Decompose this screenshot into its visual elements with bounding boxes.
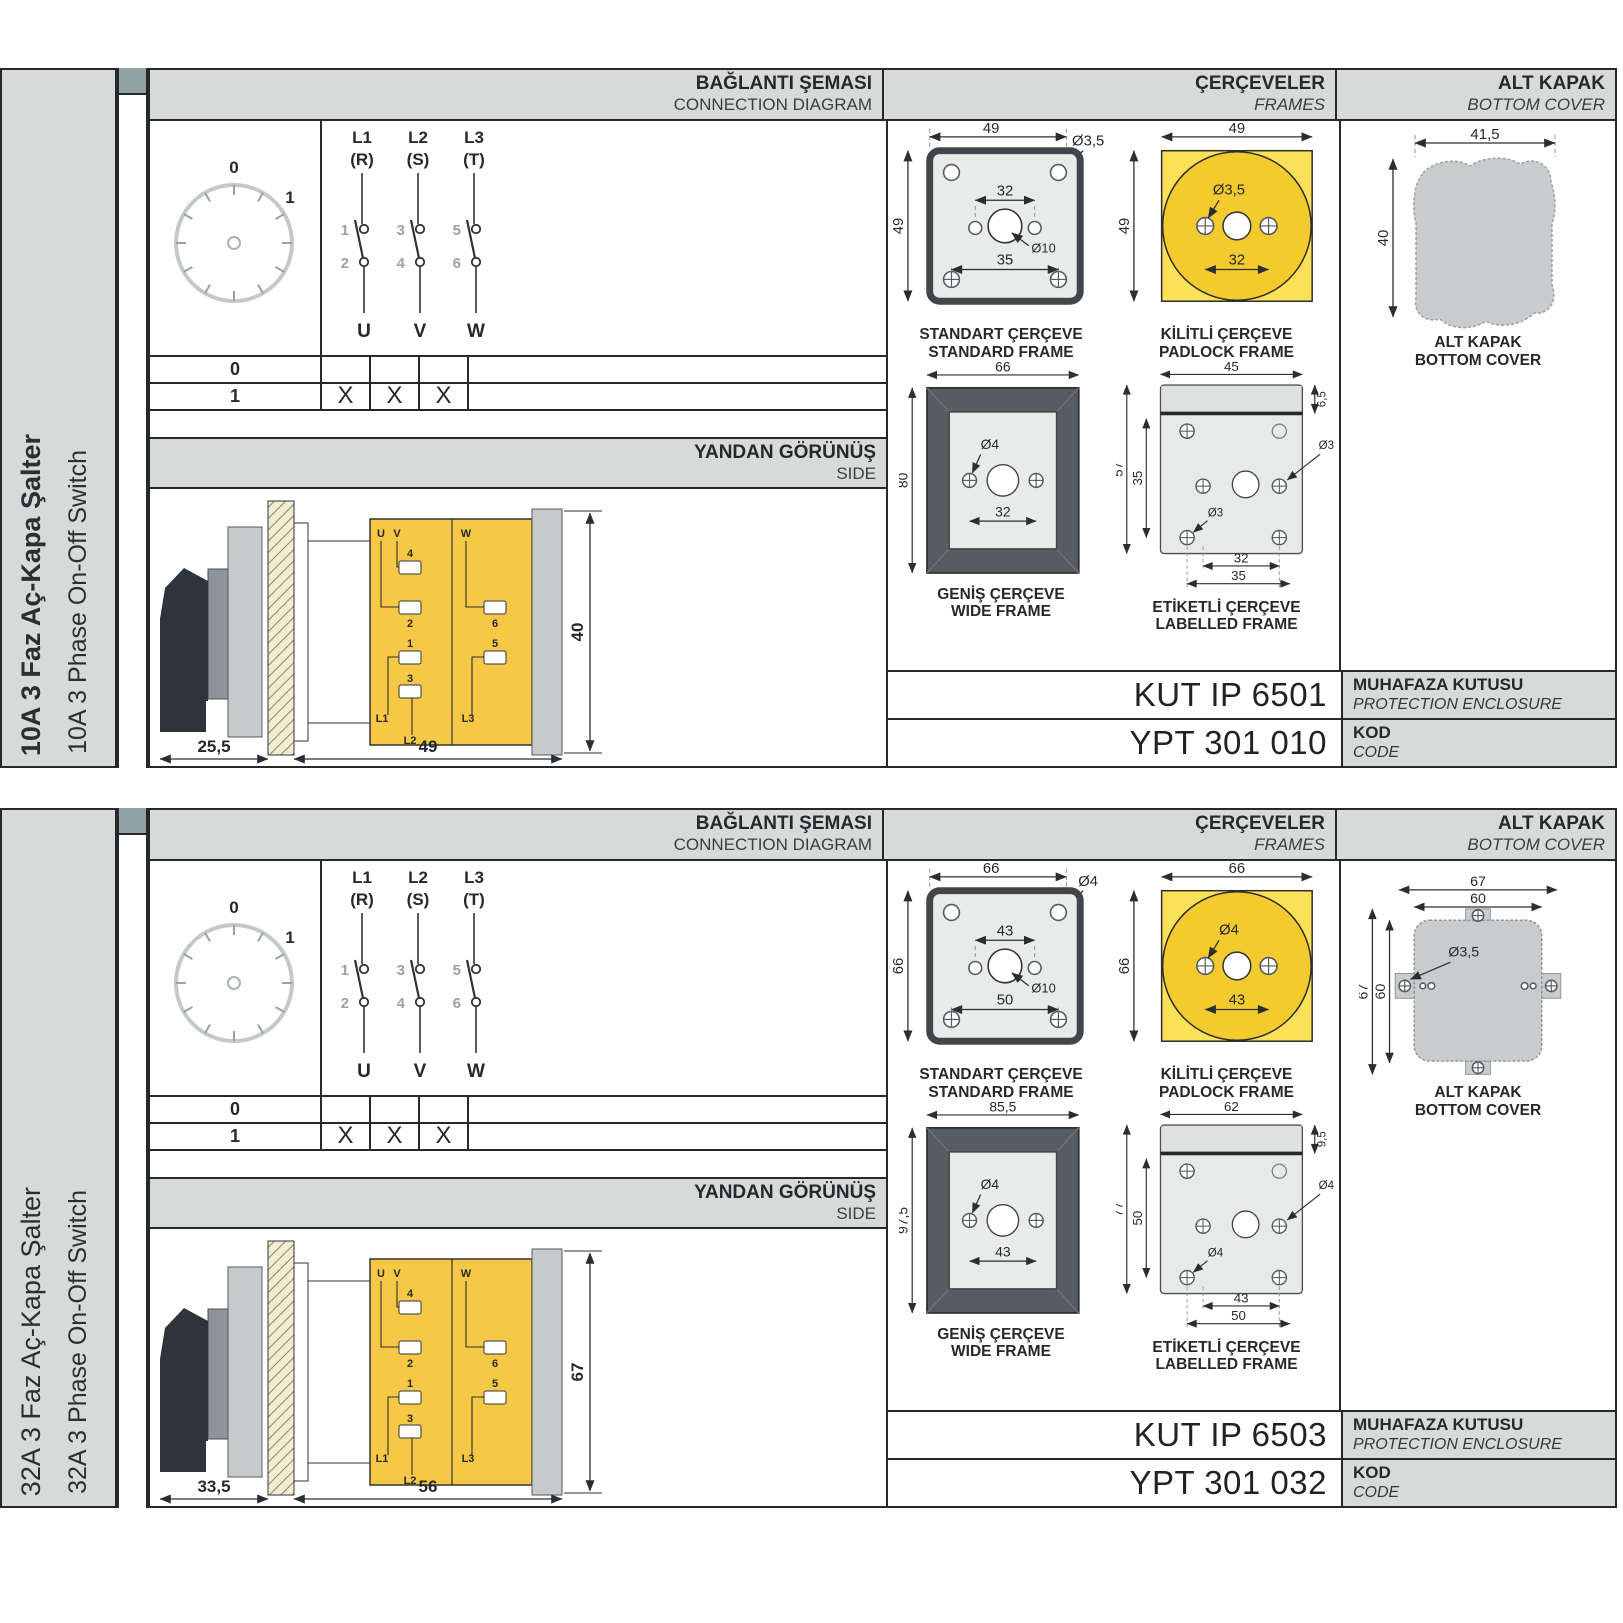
wide-frame-caption-en: WIDE FRAME	[937, 1343, 1064, 1361]
row1-w: X	[420, 1124, 469, 1149]
svg-text:43: 43	[995, 1243, 1011, 1259]
bottom-cover-caption-en: BOTTOM COVER	[1415, 1102, 1541, 1120]
bottom-cover-drawing-tabbed: 67 60 67 60	[1359, 867, 1597, 1082]
svg-text:1: 1	[341, 222, 349, 239]
svg-text:35: 35	[997, 253, 1014, 269]
switch-table-row-1: 1 X X X	[150, 384, 886, 411]
sidebar: 32A 3 Faz Aç-Kapa Şalter 32A 3 Phase On-…	[0, 808, 117, 1508]
side-view-header: YANDAN GÖRÜNÜŞ SIDE	[150, 1177, 886, 1229]
svg-text:V: V	[414, 1061, 427, 1082]
header-frames-subtitle: FRAMES	[884, 835, 1325, 855]
header-frames-title: ÇERÇEVELER	[884, 813, 1325, 835]
sidebar: 10A 3 Faz Aç-Kapa Şalter 10A 3 Phase On-…	[0, 68, 117, 768]
pole-2: L2 (S) V 3 4	[397, 868, 430, 1082]
tab-column	[117, 808, 148, 1508]
contacts-drawing: L1 (R) U 1 2 L2	[322, 861, 886, 1097]
product-section: 10A 3 Faz Aç-Kapa Şalter 10A 3 Phase On-…	[0, 68, 1623, 768]
svg-text:4: 4	[407, 1288, 414, 1300]
connection-diagram: 0 1 L1 (R) U	[150, 861, 886, 1097]
svg-text:L1: L1	[352, 868, 372, 887]
svg-text:85,5: 85,5	[989, 1102, 1016, 1114]
row0-label: 0	[150, 1097, 322, 1122]
enclosure-label-tr: MUHAFAZA KUTUSU	[1353, 1415, 1615, 1435]
switch-handle	[160, 1308, 208, 1472]
svg-text:50: 50	[1129, 1210, 1144, 1225]
sidebar-title: 32A 3 Faz Aç-Kapa Şalter	[16, 1187, 47, 1496]
svg-text:6: 6	[492, 1358, 498, 1370]
enclosure-label-tr: MUHAFAZA KUTUSU	[1353, 675, 1615, 695]
enclosure-label: MUHAFAZA KUTUSU PROTECTION ENCLOSURE	[1341, 1412, 1615, 1458]
svg-text:66: 66	[1228, 861, 1245, 877]
connection-diagram: 0 1 L1 (R) U	[150, 121, 886, 357]
standard-frame-caption-en: STANDARD FRAME	[919, 1084, 1082, 1102]
wide-frame-figure: 66 80 Ø4	[888, 362, 1114, 635]
svg-text:43: 43	[1233, 1290, 1248, 1305]
svg-text:66: 66	[892, 958, 907, 975]
dial-pos-0: 0	[229, 158, 238, 177]
bottom-cover-drawing-blob: 41,5 40	[1363, 127, 1593, 332]
svg-text:Ø4: Ø4	[981, 436, 1000, 452]
gasket	[294, 523, 308, 741]
switch-body	[370, 519, 532, 745]
section-main: BAĞLANTI ŞEMASI CONNECTION DIAGRAM ÇERÇE…	[148, 808, 1617, 1508]
svg-text:L3: L3	[464, 128, 484, 147]
front-plate	[228, 527, 262, 737]
svg-text:66: 66	[983, 861, 1000, 877]
back-plate	[532, 509, 562, 755]
svg-text:60: 60	[1470, 891, 1486, 907]
svg-text:32: 32	[1228, 253, 1245, 269]
svg-text:40: 40	[1375, 230, 1392, 247]
svg-text:Ø3: Ø3	[1318, 440, 1333, 452]
pole-3: L3 (T) W 5 6	[453, 868, 485, 1082]
svg-text:49: 49	[419, 737, 438, 756]
standard-frame-drawing: 49 Ø3,5 49 32	[892, 121, 1110, 324]
padlock-frame-drawing: 66 66 Ø4 43	[1118, 861, 1336, 1064]
row1-v: X	[371, 384, 420, 409]
svg-text:L3: L3	[464, 868, 484, 887]
bottom-cover-caption-en: BOTTOM COVER	[1415, 352, 1541, 370]
frames-column: 66 Ø4 66 43	[886, 861, 1339, 1414]
svg-text:49: 49	[1228, 121, 1245, 137]
labelled-frame-figure: 45 6,5 57 35	[1114, 362, 1339, 635]
svg-text:5: 5	[453, 962, 461, 979]
sidebar-subtitle: 10A 3 Phase On-Off Switch	[64, 450, 93, 754]
svg-text:L3: L3	[462, 1453, 475, 1465]
front-module	[308, 1281, 370, 1463]
svg-text:35: 35	[1129, 470, 1144, 485]
svg-text:U: U	[357, 321, 371, 342]
svg-text:1: 1	[407, 638, 413, 650]
back-plate	[532, 1249, 562, 1495]
row0-w	[420, 1097, 469, 1122]
padlock-frame-drawing: 49 49 Ø3,5 32	[1118, 121, 1336, 324]
wide-frame-caption-tr: GENİŞ ÇERÇEVE	[937, 586, 1064, 604]
svg-text:97,5: 97,5	[899, 1206, 911, 1233]
row0-u	[322, 1097, 371, 1122]
svg-text:35: 35	[1231, 568, 1246, 583]
header-cover-subtitle: BOTTOM COVER	[1337, 835, 1605, 855]
bottom-cover-caption-tr: ALT KAPAK	[1415, 1084, 1541, 1102]
row1-w: X	[420, 384, 469, 409]
contacts-cell: L1 (R) U 1 2 L2	[322, 121, 886, 355]
labelled-frame-figure: 62 9,5 77 50	[1114, 1102, 1339, 1375]
enclosure-label: MUHAFAZA KUTUSU PROTECTION ENCLOSURE	[1341, 672, 1615, 718]
rotary-dial-drawing: 0 1	[150, 121, 322, 357]
svg-text:4: 4	[397, 995, 406, 1012]
svg-text:77: 77	[1116, 1202, 1125, 1217]
front-module	[308, 541, 370, 723]
svg-text:2: 2	[407, 1358, 413, 1370]
row0-v	[371, 1097, 420, 1122]
standard-frame-caption-tr: STANDART ÇERÇEVE	[919, 1066, 1082, 1084]
wide-frame-figure: 85,5 97,5 Ø4	[888, 1102, 1114, 1375]
column-headers: BAĞLANTI ŞEMASI CONNECTION DIAGRAM ÇERÇE…	[150, 70, 1615, 121]
svg-text:L2: L2	[404, 1475, 417, 1487]
svg-text:(R): (R)	[350, 890, 374, 909]
side-view-drawing: U V W 4 2 1 3 6 5 L1 L2 L3	[150, 489, 886, 770]
svg-text:40: 40	[568, 623, 587, 642]
header-cover-title: ALT KAPAK	[1337, 813, 1605, 835]
svg-text:4: 4	[407, 548, 414, 560]
side-view-title: YANDAN GÖRÜNÜŞ	[150, 442, 876, 464]
svg-text:9,5: 9,5	[1316, 1131, 1328, 1147]
switch-body	[370, 1259, 532, 1485]
pole-1: L1 (R) U 1 2	[341, 868, 374, 1082]
code-label-tr: KOD	[1353, 723, 1615, 743]
svg-text:66: 66	[1118, 958, 1133, 975]
code-label: KOD CODE	[1341, 1460, 1615, 1506]
svg-text:49: 49	[983, 121, 1000, 137]
svg-text:(S): (S)	[407, 150, 430, 169]
code-rows: KUT IP 6503 MUHAFAZA KUTUSU PROTECTION E…	[886, 1410, 1615, 1506]
svg-text:41,5: 41,5	[1470, 127, 1499, 143]
bottom-cover-figure: 67 60 67 60	[1341, 861, 1615, 1120]
header-connection-subtitle: CONNECTION DIAGRAM	[150, 835, 872, 855]
side-view-title: YANDAN GÖRÜNÜŞ	[150, 1182, 876, 1204]
row0-w	[420, 357, 469, 382]
svg-text:Ø10: Ø10	[1031, 981, 1055, 996]
dial-pos-0: 0	[229, 898, 238, 917]
svg-text:L1: L1	[376, 1453, 389, 1465]
tab-square	[119, 68, 146, 95]
wide-frame-drawing: 85,5 97,5 Ø4	[899, 1102, 1103, 1324]
padlock-frame-figure: 49 49 Ø3,5 32 KİLİTLİ ÇERÇ	[1114, 121, 1339, 362]
svg-text:V: V	[414, 321, 427, 342]
code-row: YPT 301 032 KOD CODE	[888, 1458, 1615, 1506]
svg-text:4: 4	[397, 255, 406, 272]
contacts-cell: L1 (R) U 1 2 L2	[322, 861, 886, 1095]
header-cover-title: ALT KAPAK	[1337, 73, 1605, 95]
svg-text:U: U	[377, 528, 385, 540]
standard-frame-caption-tr: STANDART ÇERÇEVE	[919, 326, 1082, 344]
svg-text:L1: L1	[352, 128, 372, 147]
svg-text:Ø3,5: Ø3,5	[1072, 134, 1104, 150]
bottom-cover-column: 41,5 40	[1339, 121, 1615, 674]
svg-text:Ø3,5: Ø3,5	[1448, 944, 1479, 960]
row0-label: 0	[150, 357, 322, 382]
svg-text:49: 49	[892, 218, 907, 235]
svg-text:67: 67	[568, 1363, 587, 1382]
handle-hub	[208, 1309, 228, 1439]
dial-pos-1: 1	[285, 928, 294, 947]
connection-column: 0 1 L1 (R) U	[150, 861, 886, 1506]
svg-text:67: 67	[1359, 984, 1372, 1000]
svg-text:3: 3	[407, 673, 413, 685]
mounting-panel	[268, 501, 294, 755]
svg-text:Ø3,5: Ø3,5	[1212, 182, 1244, 198]
svg-text:V: V	[393, 1268, 401, 1280]
svg-text:33,5: 33,5	[197, 1477, 230, 1496]
svg-text:67: 67	[1470, 874, 1486, 890]
svg-text:Ø4: Ø4	[981, 1176, 1000, 1192]
header-cover: ALT KAPAK BOTTOM COVER	[1337, 70, 1615, 119]
padlock-frame-figure: 66 66 Ø4 43 KİLİTLİ ÇERÇEV	[1114, 861, 1339, 1102]
svg-text:Ø3: Ø3	[1207, 507, 1222, 519]
dial-pos-1: 1	[285, 188, 294, 207]
header-connection: BAĞLANTI ŞEMASI CONNECTION DIAGRAM	[150, 810, 884, 859]
header-frames-subtitle: FRAMES	[884, 95, 1325, 115]
svg-text:45: 45	[1224, 362, 1239, 374]
header-cover-subtitle: BOTTOM COVER	[1337, 95, 1605, 115]
labelled-frame-caption-tr: ETİKETLİ ÇERÇEVE	[1152, 1339, 1300, 1357]
svg-text:(R): (R)	[350, 150, 374, 169]
svg-text:6: 6	[453, 255, 461, 272]
svg-text:L3: L3	[462, 713, 475, 725]
svg-text:32: 32	[995, 503, 1011, 519]
product-section: 32A 3 Faz Aç-Kapa Şalter 32A 3 Phase On-…	[0, 808, 1623, 1508]
switch-table-row-0: 0	[150, 357, 886, 384]
svg-text:1: 1	[407, 1378, 413, 1390]
rotary-dial-cell: 0 1	[150, 121, 322, 355]
product-code: YPT 301 032	[888, 1460, 1341, 1506]
contacts-drawing: L1 (R) U 1 2 L2	[322, 121, 886, 357]
wide-frame-caption-tr: GENİŞ ÇERÇEVE	[937, 1326, 1064, 1344]
gasket	[294, 1263, 308, 1481]
svg-text:32: 32	[1233, 550, 1248, 565]
padlock-frame-caption-tr: KİLİTLİ ÇERÇEVE	[1159, 1066, 1294, 1084]
svg-text:5: 5	[492, 1378, 498, 1390]
svg-text:U: U	[377, 1268, 385, 1280]
section-main: BAĞLANTI ŞEMASI CONNECTION DIAGRAM ÇERÇE…	[148, 68, 1617, 768]
standard-frame-figure: 66 Ø4 66 43	[888, 861, 1114, 1102]
side-view: U V W 4 2 1 3 6 5 L1 L2 L3	[150, 1229, 886, 1510]
svg-text:32: 32	[997, 183, 1014, 199]
svg-text:43: 43	[997, 923, 1014, 939]
row1-label: 1	[150, 1124, 322, 1149]
labelled-frame-caption-en: LABELLED FRAME	[1152, 1356, 1300, 1374]
svg-text:50: 50	[1231, 1308, 1246, 1323]
svg-text:62: 62	[1224, 1102, 1239, 1114]
column-headers: BAĞLANTI ŞEMASI CONNECTION DIAGRAM ÇERÇE…	[150, 810, 1615, 861]
pole-3: L3 (T) W 5 6	[453, 128, 485, 342]
svg-text:6: 6	[453, 995, 461, 1012]
svg-text:3: 3	[407, 1413, 413, 1425]
padlock-frame-caption-en: PADLOCK FRAME	[1159, 344, 1294, 362]
labelled-frame-drawing: 62 9,5 77 50	[1116, 1102, 1338, 1337]
header-connection-title: BAĞLANTI ŞEMASI	[150, 73, 872, 95]
svg-text:Ø4: Ø4	[1219, 922, 1239, 938]
svg-text:(S): (S)	[407, 890, 430, 909]
bottom-cover-figure: 41,5 40	[1341, 121, 1615, 370]
mounting-panel	[268, 1241, 294, 1495]
side-view-subtitle: SIDE	[150, 1204, 876, 1224]
enclosure-label-en: PROTECTION ENCLOSURE	[1353, 695, 1615, 714]
standard-frame-figure: 49 Ø3,5 49 32	[888, 121, 1114, 362]
enclosure-code: KUT IP 6503	[888, 1412, 1341, 1458]
svg-text:L2: L2	[408, 868, 428, 887]
side-view-header: YANDAN GÖRÜNÜŞ SIDE	[150, 437, 886, 489]
side-view-drawing: U V W 4 2 1 3 6 5 L1 L2 L3	[150, 1229, 886, 1510]
pole-1: L1 (R) U 1 2	[341, 128, 374, 342]
row1-u: X	[322, 384, 371, 409]
row0-v	[371, 357, 420, 382]
switch-table-row-1: 1 X X X	[150, 1124, 886, 1151]
front-plate	[228, 1267, 262, 1477]
enclosure-row: KUT IP 6501 MUHAFAZA KUTUSU PROTECTION E…	[888, 672, 1615, 718]
code-row: YPT 301 010 KOD CODE	[888, 718, 1615, 766]
svg-text:Ø4: Ø4	[1207, 1247, 1223, 1259]
svg-text:W: W	[467, 1061, 485, 1082]
svg-text:1: 1	[341, 962, 349, 979]
svg-text:W: W	[467, 321, 485, 342]
svg-text:V: V	[393, 528, 401, 540]
standard-frame-drawing: 66 Ø4 66 43	[892, 861, 1110, 1064]
svg-text:25,5: 25,5	[197, 737, 230, 756]
tab-square	[119, 808, 146, 835]
header-frames: ÇERÇEVELER FRAMES	[884, 810, 1337, 859]
handle-hub	[208, 569, 228, 699]
row1-v: X	[371, 1124, 420, 1149]
side-view-subtitle: SIDE	[150, 464, 876, 484]
sidebar-subtitle: 32A 3 Phase On-Off Switch	[64, 1190, 93, 1494]
wide-frame-drawing: 66 80 Ø4	[899, 362, 1103, 584]
svg-text:43: 43	[1228, 993, 1245, 1009]
frames-column: 49 Ø3,5 49 32	[886, 121, 1339, 674]
header-connection: BAĞLANTI ŞEMASI CONNECTION DIAGRAM	[150, 70, 884, 119]
labelled-frame-caption-en: LABELLED FRAME	[1152, 616, 1300, 634]
header-connection-subtitle: CONNECTION DIAGRAM	[150, 95, 872, 115]
svg-text:49: 49	[1118, 218, 1133, 235]
enclosure-row: KUT IP 6503 MUHAFAZA KUTUSU PROTECTION E…	[888, 1412, 1615, 1458]
svg-text:80: 80	[899, 472, 911, 488]
svg-text:3: 3	[397, 222, 405, 239]
svg-text:2: 2	[407, 618, 413, 630]
product-code: YPT 301 010	[888, 720, 1341, 766]
labelled-frame-caption-tr: ETİKETLİ ÇERÇEVE	[1152, 599, 1300, 617]
svg-text:2: 2	[341, 995, 349, 1012]
pole-2: L2 (S) V 3 4	[397, 128, 430, 342]
header-frames: ÇERÇEVELER FRAMES	[884, 70, 1337, 119]
sidebar-title: 10A 3 Faz Aç-Kapa Şalter	[16, 434, 47, 756]
side-view: U V W 4 2 1 3 6 5 L1 L2 L3	[150, 489, 886, 770]
svg-text:L1: L1	[376, 713, 389, 725]
labelled-frame-drawing: 45 6,5 57 35	[1116, 362, 1338, 597]
svg-text:5: 5	[453, 222, 461, 239]
svg-text:50: 50	[997, 993, 1014, 1009]
svg-text:Ø4: Ø4	[1318, 1180, 1334, 1192]
standard-frame-caption-en: STANDARD FRAME	[919, 344, 1082, 362]
svg-text:W: W	[461, 1268, 472, 1280]
svg-text:Ø4: Ø4	[1078, 874, 1098, 890]
enclosure-code: KUT IP 6501	[888, 672, 1341, 718]
svg-text:Ø10: Ø10	[1031, 241, 1055, 256]
svg-text:66: 66	[995, 362, 1011, 374]
svg-text:60: 60	[1373, 984, 1389, 1000]
svg-text:L2: L2	[408, 128, 428, 147]
connection-column: 0 1 L1 (R) U	[150, 121, 886, 766]
bottom-cover-column: 67 60 67 60	[1339, 861, 1615, 1414]
tab-column	[117, 68, 148, 768]
svg-text:3: 3	[397, 962, 405, 979]
switch-table-row-0: 0	[150, 1097, 886, 1124]
code-label-tr: KOD	[1353, 1463, 1615, 1483]
rotary-dial-cell: 0 1	[150, 861, 322, 1095]
code-rows: KUT IP 6501 MUHAFAZA KUTUSU PROTECTION E…	[886, 670, 1615, 766]
row1-u: X	[322, 1124, 371, 1149]
code-label-en: CODE	[1353, 1483, 1615, 1502]
svg-text:W: W	[461, 528, 472, 540]
svg-text:6,5: 6,5	[1316, 391, 1328, 407]
svg-text:57: 57	[1116, 462, 1125, 477]
header-frames-title: ÇERÇEVELER	[884, 73, 1325, 95]
enclosure-label-en: PROTECTION ENCLOSURE	[1353, 1435, 1615, 1454]
rotary-dial-drawing: 0 1	[150, 861, 322, 1097]
svg-text:U: U	[357, 1061, 371, 1082]
padlock-frame-caption-en: PADLOCK FRAME	[1159, 1084, 1294, 1102]
svg-text:(T): (T)	[463, 890, 485, 909]
svg-text:2: 2	[341, 255, 349, 272]
switch-handle	[160, 568, 208, 732]
header-cover: ALT KAPAK BOTTOM COVER	[1337, 810, 1615, 859]
svg-text:5: 5	[492, 638, 498, 650]
row0-u	[322, 357, 371, 382]
padlock-frame-caption-tr: KİLİTLİ ÇERÇEVE	[1159, 326, 1294, 344]
svg-text:L2: L2	[404, 735, 417, 747]
svg-text:(T): (T)	[463, 150, 485, 169]
svg-text:56: 56	[419, 1477, 438, 1496]
code-label-en: CODE	[1353, 743, 1615, 762]
code-label: KOD CODE	[1341, 720, 1615, 766]
bottom-cover-caption-tr: ALT KAPAK	[1415, 334, 1541, 352]
row1-label: 1	[150, 384, 322, 409]
svg-text:6: 6	[492, 618, 498, 630]
wide-frame-caption-en: WIDE FRAME	[937, 603, 1064, 621]
header-connection-title: BAĞLANTI ŞEMASI	[150, 813, 872, 835]
